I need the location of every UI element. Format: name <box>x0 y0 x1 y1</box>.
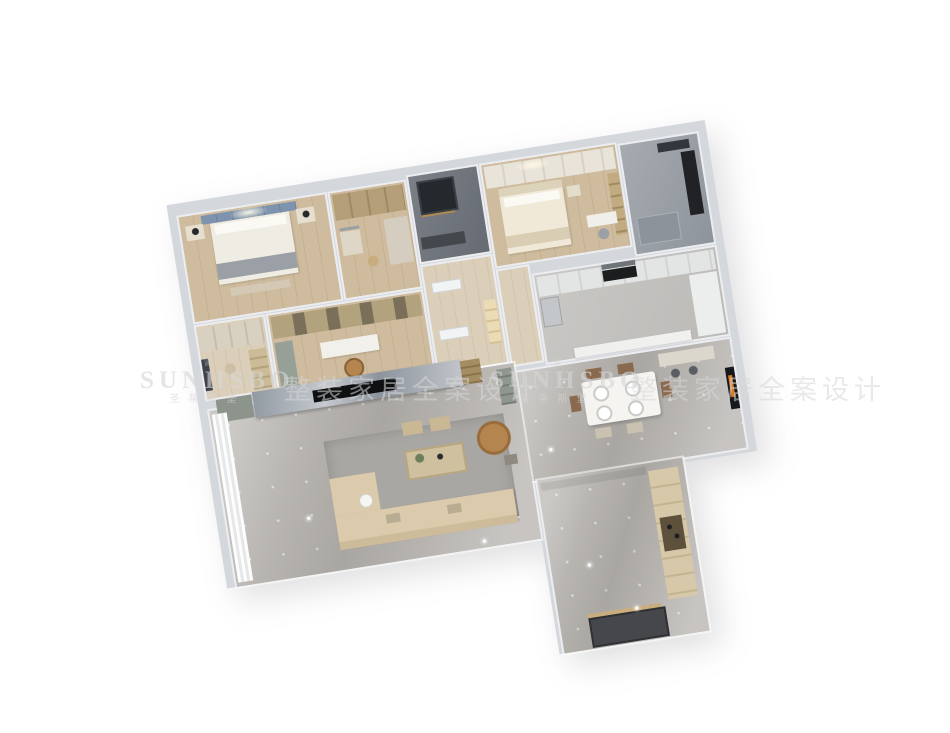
shelf-unit <box>459 358 483 385</box>
apartment-model <box>166 111 843 733</box>
nightstand <box>566 184 581 197</box>
side-table <box>504 454 518 466</box>
vanity-desk <box>340 229 364 256</box>
rendered-floorplan-image: ♕ SUNHSBO 圣蒂斯堡 整装家居全案设计 ♕ SUNHSBO 圣蒂斯堡 整… <box>0 0 950 733</box>
